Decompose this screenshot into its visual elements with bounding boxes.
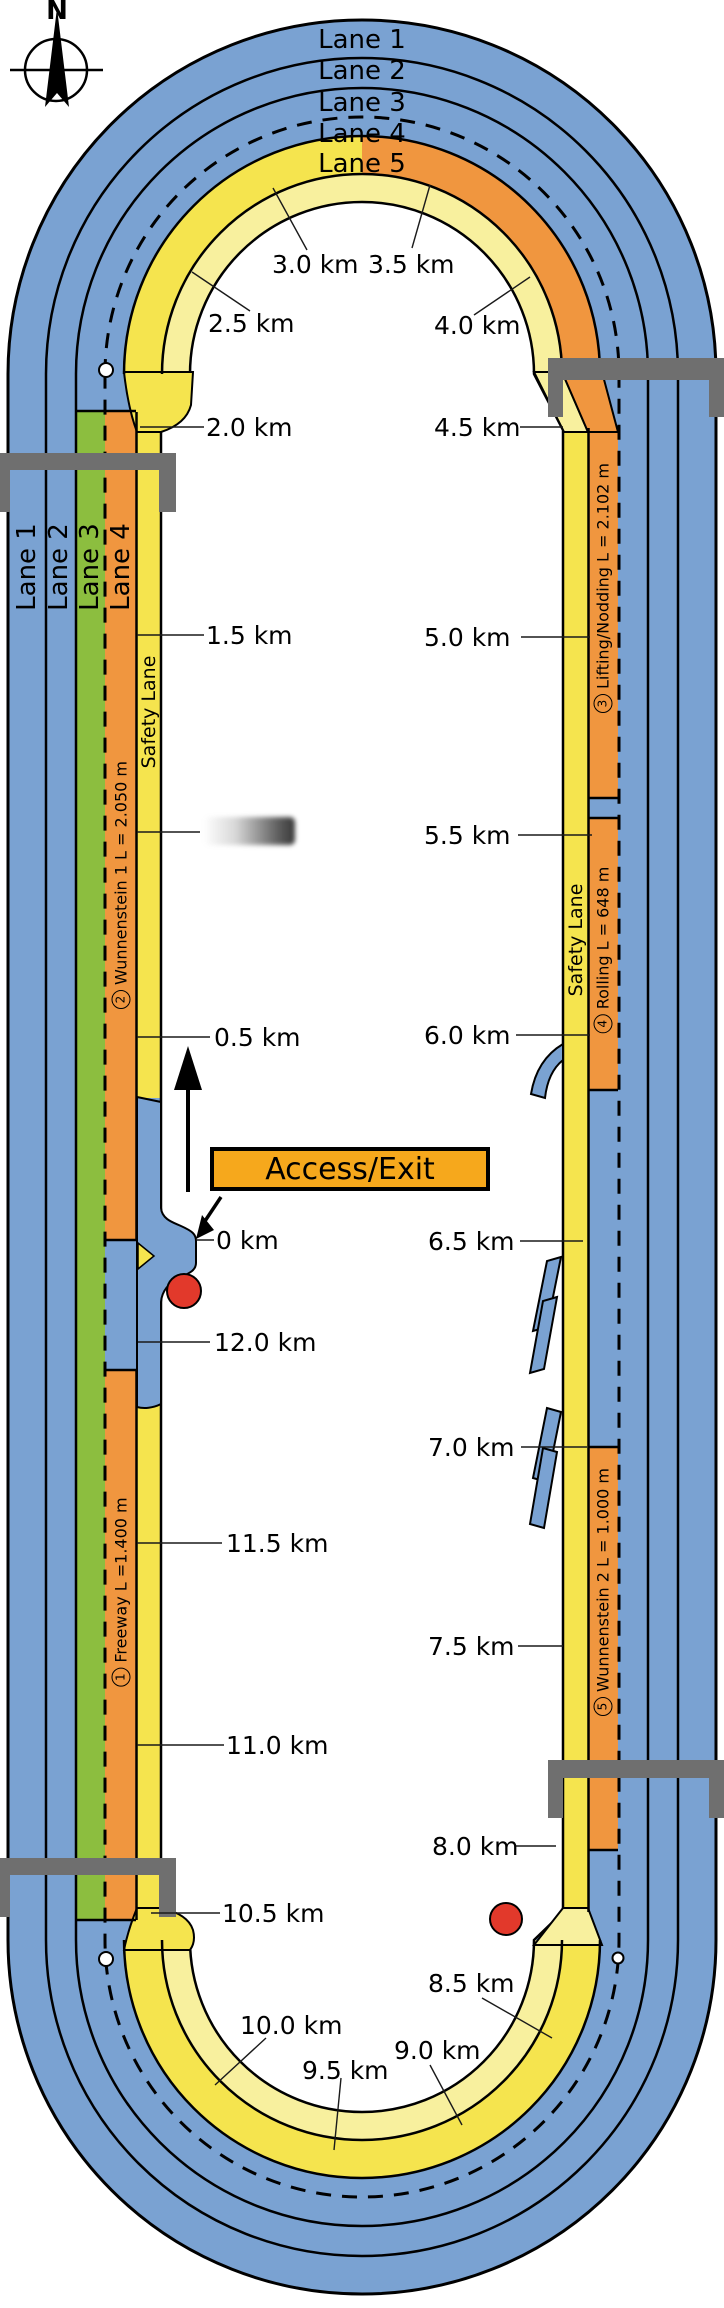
km-marker-3.0: 3.0 km xyxy=(272,250,359,279)
km-marker-9.5: 9.5 km xyxy=(302,2056,389,2085)
left-label-lane1: Lane 1 xyxy=(12,523,42,611)
km-marker-4.5: 4.5 km xyxy=(434,413,521,442)
km-marker-10.5: 10.5 km xyxy=(222,1899,324,1928)
km-marker-12.0: 12.0 km xyxy=(214,1328,316,1357)
km-marker-2.0: 2.0 km xyxy=(206,413,293,442)
segment-label-lifting-nodding: 3 Lifting/Nodding L = 2.102 m xyxy=(594,463,613,713)
segment-number-badge: 3 xyxy=(594,694,613,713)
km-marker-8.5: 8.5 km xyxy=(428,1969,515,1998)
segment-number-badge: 4 xyxy=(594,1014,613,1033)
km-marker-6.5: 6.5 km xyxy=(428,1227,515,1256)
km-marker-4.0: 4.0 km xyxy=(434,311,521,340)
segment-label-freeway: 1 Freeway L =1.400 m xyxy=(112,1497,131,1686)
km-marker-2.5: 2.5 km xyxy=(208,309,295,338)
curve-label-lane3: Lane 3 xyxy=(282,88,442,118)
safety-lane-left-lower xyxy=(137,1400,161,1912)
white-dot-lower-left xyxy=(99,1952,113,1966)
curve-label-lane2: Lane 2 xyxy=(282,56,442,86)
safety-lane-label-left: Safety Lane xyxy=(138,656,160,769)
segment-text: Rolling L = 648 m xyxy=(594,867,613,1010)
safety-lane-right xyxy=(563,430,588,1912)
test-track-diagram: N Lane 1 Lane 2 Lane 3 Lane 4 Lane 5 Lan… xyxy=(0,0,724,2308)
compass-north-label: N xyxy=(43,0,71,26)
km-marker-7.5: 7.5 km xyxy=(428,1632,515,1661)
white-dot-lower-right xyxy=(613,1953,624,1964)
lane3-green-strip xyxy=(76,410,105,1920)
segment-label-wunnenstein1: 2 Wunnenstein 1 L = 2.050 m xyxy=(112,761,131,1009)
segment-label-rolling: 4 Rolling L = 648 m xyxy=(594,867,613,1034)
km-marker-6.0: 6.0 km xyxy=(424,1021,511,1050)
km-marker-5.0: 5.0 km xyxy=(424,623,511,652)
segment-number-badge: 2 xyxy=(112,990,131,1009)
segment-text: Wunnenstein 1 L = 2.050 m xyxy=(112,761,131,985)
segment-text: Freeway L =1.400 m xyxy=(112,1497,131,1662)
km-marker-3.5: 3.5 km xyxy=(368,250,455,279)
km-marker-1.5: 1.5 km xyxy=(206,621,293,650)
segment-number-badge: 1 xyxy=(112,1668,131,1687)
segment-number-badge: 5 xyxy=(594,1697,613,1716)
km-marker-0.5: 0.5 km xyxy=(214,1023,301,1052)
km-marker-11.5: 11.5 km xyxy=(226,1529,328,1558)
segment-text: Wunnenstein 2 L = 1.000 m xyxy=(594,1468,613,1692)
left-label-lane2: Lane 2 xyxy=(44,523,74,611)
segment-text: Lifting/Nodding L = 2.102 m xyxy=(594,463,613,689)
red-marker-lower-right xyxy=(490,1903,522,1935)
safety-lane-label-right: Safety Lane xyxy=(565,884,587,997)
curve-label-lane1: Lane 1 xyxy=(282,25,442,55)
curve-label-lane4: Lane 4 xyxy=(282,119,442,149)
access-exit-label: Access/Exit xyxy=(210,1147,490,1191)
segment-label-wunnenstein2: 5 Wunnenstein 2 L = 1.000 m xyxy=(594,1468,613,1716)
left-label-lane4: Lane 4 xyxy=(106,523,136,611)
km-marker-0: 0 km xyxy=(216,1226,279,1255)
km-marker-8.0: 8.0 km xyxy=(432,1832,519,1861)
km-marker-7.0: 7.0 km xyxy=(428,1433,515,1462)
km-marker-11.0: 11.0 km xyxy=(226,1731,328,1760)
left-label-lane3: Lane 3 xyxy=(75,523,105,611)
km-marker-5.5: 5.5 km xyxy=(424,821,511,850)
blurred-km-label xyxy=(203,817,295,845)
red-marker-access xyxy=(167,1274,201,1308)
curve-label-lane5: Lane 5 xyxy=(282,149,442,179)
white-dot-upper-left xyxy=(99,363,113,377)
km-marker-9.0: 9.0 km xyxy=(394,2036,481,2065)
km-marker-10.0: 10.0 km xyxy=(240,2011,342,2040)
